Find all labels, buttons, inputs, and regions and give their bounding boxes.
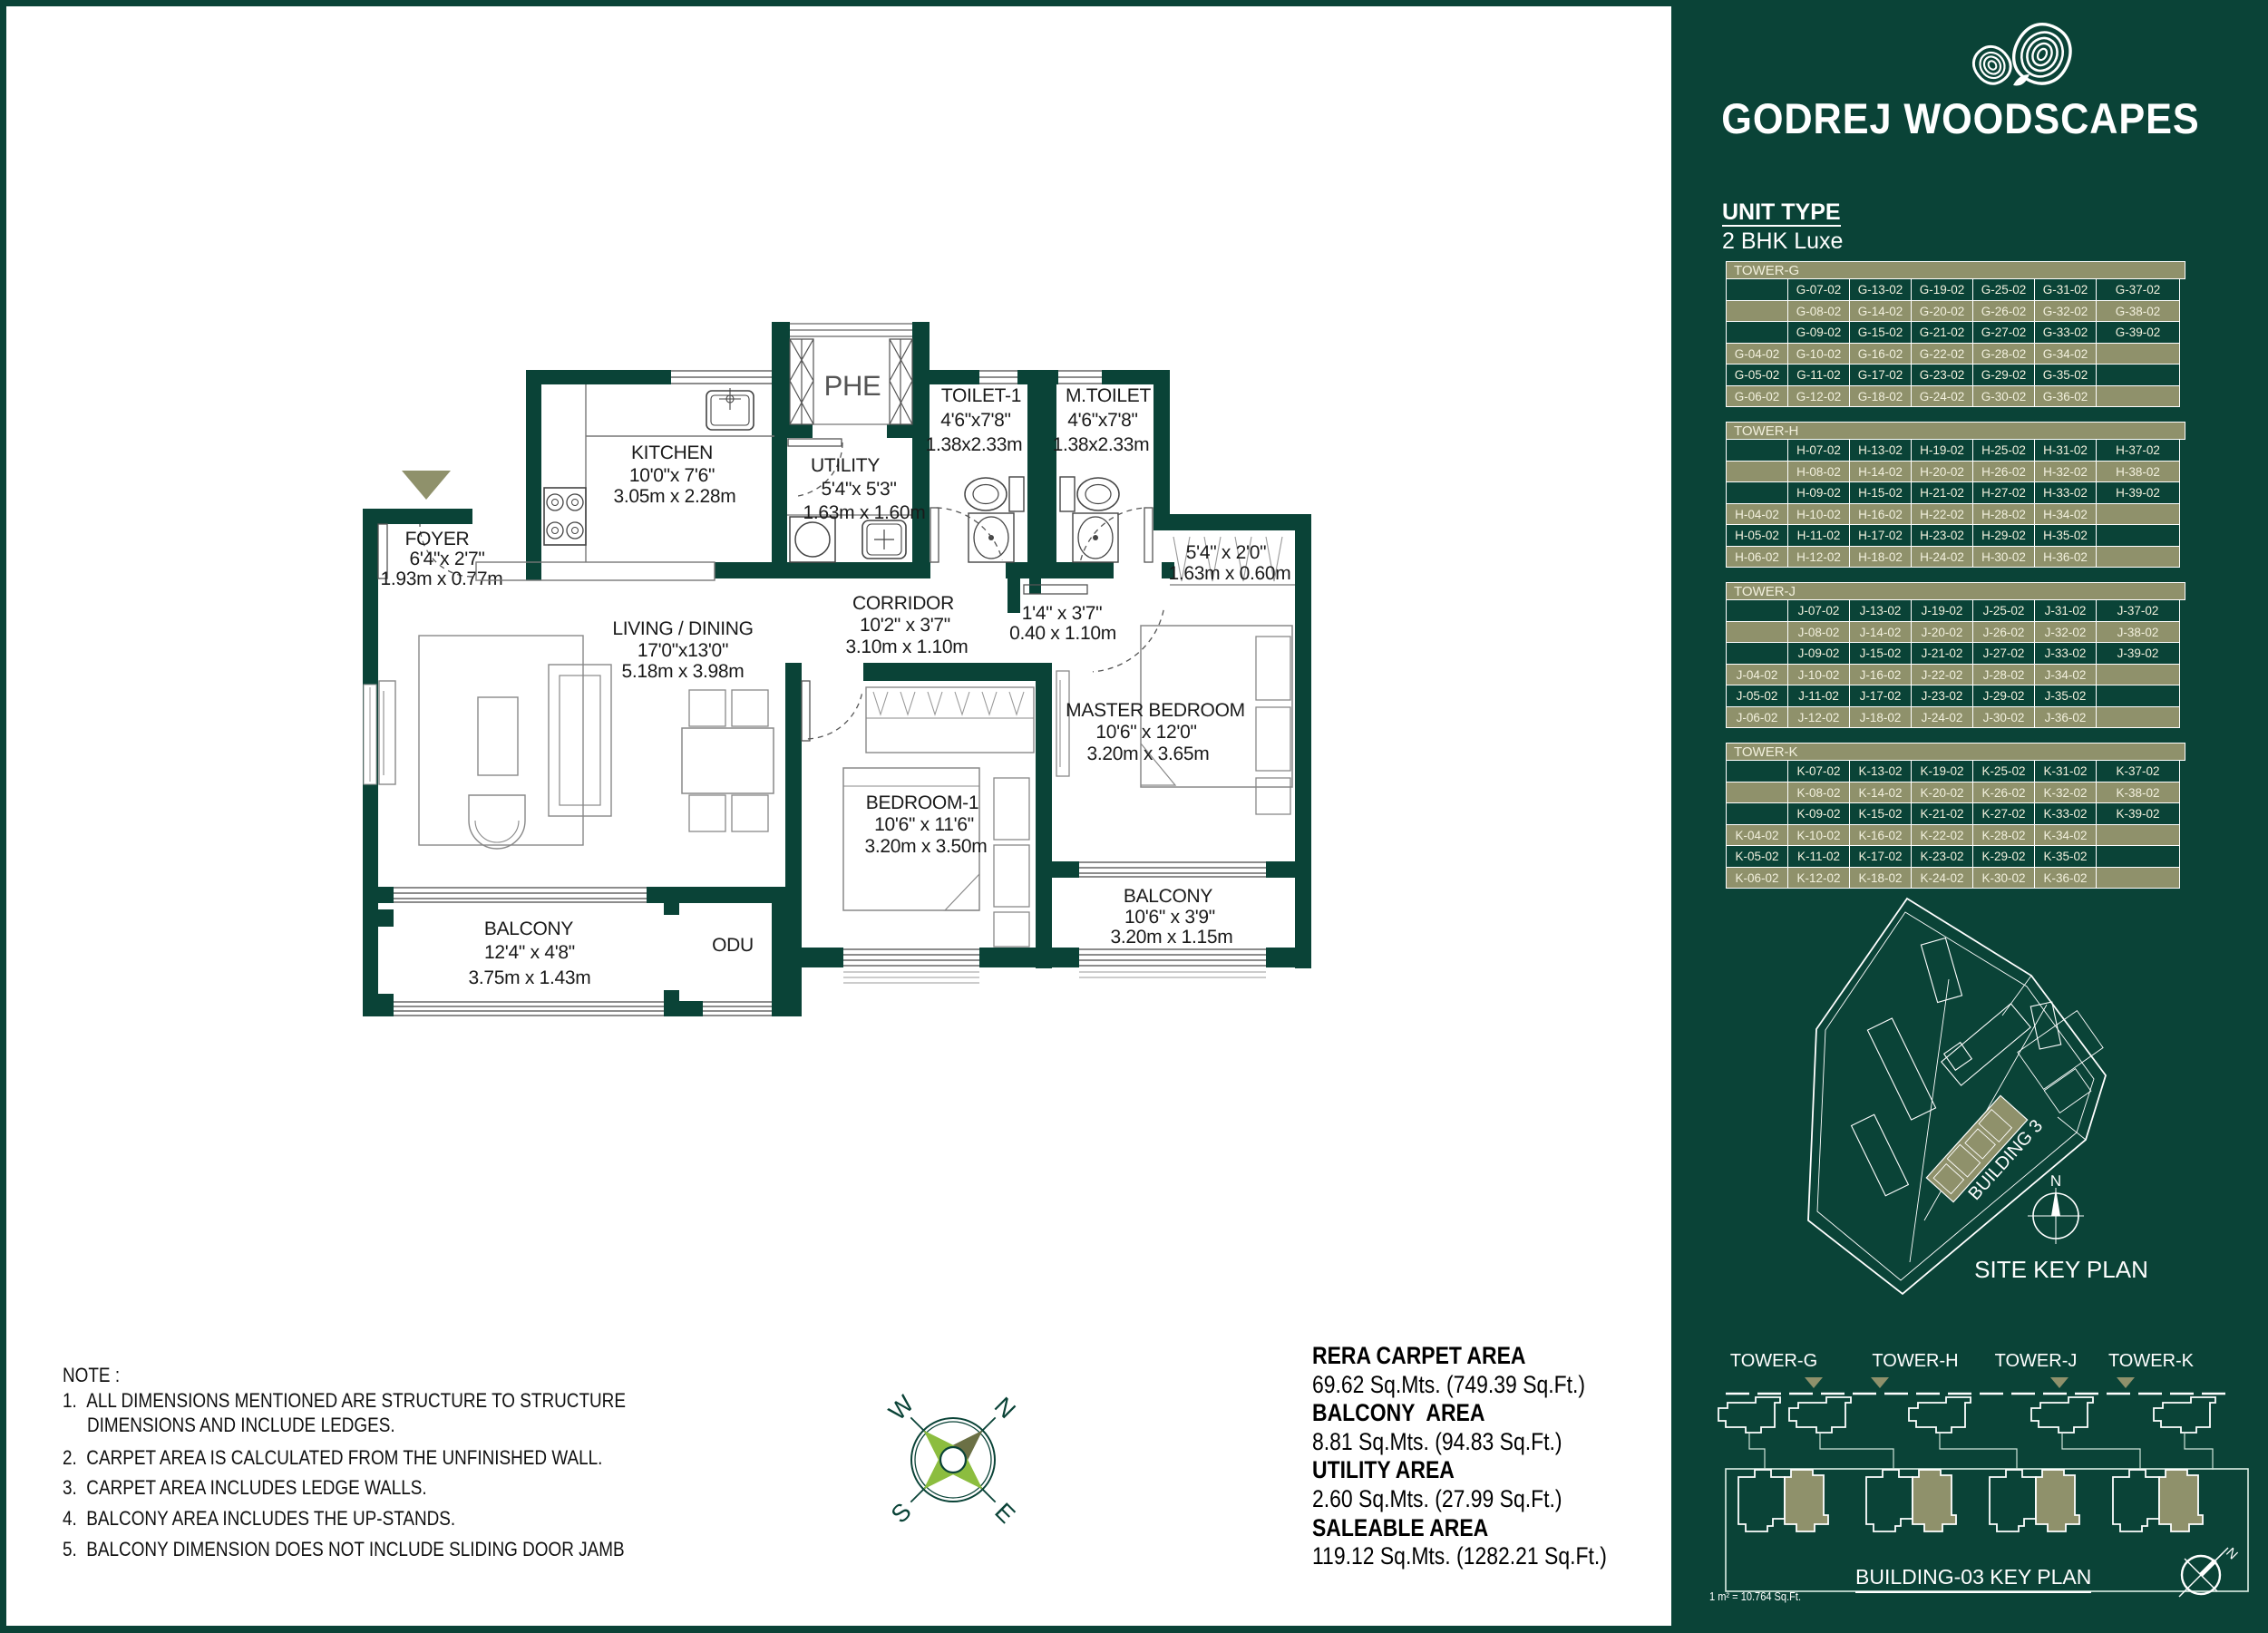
svg-text:PHE: PHE [824, 370, 881, 402]
svg-text:TOILET-1: TOILET-1 [941, 385, 1021, 406]
svg-text:12'4" x 4'8": 12'4" x 4'8" [484, 942, 575, 963]
svg-text:5'4" x 2'0": 5'4" x 2'0" [1186, 542, 1267, 563]
svg-text:6'4"x 2'7": 6'4"x 2'7" [410, 549, 485, 569]
svg-text:N: N [2050, 1172, 2061, 1190]
svg-text:1.38x2.33m: 1.38x2.33m [926, 434, 1023, 455]
svg-text:4'6"x7'8": 4'6"x7'8" [1067, 410, 1137, 431]
svg-text:LIVING / DINING: LIVING / DINING [612, 618, 753, 639]
svg-text:17'0"x13'0": 17'0"x13'0" [638, 640, 728, 661]
svg-text:MASTER BEDROOM: MASTER BEDROOM [1066, 700, 1245, 721]
svg-text:10'6" x 12'0": 10'6" x 12'0" [1095, 722, 1196, 743]
svg-text:3.75m x 1.43m: 3.75m x 1.43m [469, 967, 591, 988]
svg-text:1.63m x 0.60m: 1.63m x 0.60m [1169, 563, 1291, 584]
svg-text:3.10m x 1.10m: 3.10m x 1.10m [846, 637, 969, 657]
svg-text:1.38x2.33m: 1.38x2.33m [1053, 434, 1150, 455]
svg-text:FOYER: FOYER [405, 529, 470, 549]
svg-text:1.93m x 0.77m: 1.93m x 0.77m [381, 569, 503, 589]
svg-text:SITE KEY PLAN: SITE KEY PLAN [1974, 1256, 2148, 1283]
svg-text:1'4" x 3'7": 1'4" x 3'7" [1022, 603, 1103, 624]
svg-text:S: S [886, 1498, 917, 1529]
svg-text:4'6"x7'8": 4'6"x7'8" [940, 410, 1010, 431]
svg-text:0.40 x 1.10m: 0.40 x 1.10m [1009, 623, 1116, 644]
svg-text:BALCONY: BALCONY [1124, 886, 1213, 907]
svg-text:5.18m x 3.98m: 5.18m x 3.98m [622, 661, 745, 682]
svg-text:M.TOILET: M.TOILET [1066, 385, 1152, 406]
svg-text:10'0"x 7'6": 10'0"x 7'6" [629, 465, 715, 486]
svg-text:BEDROOM-1: BEDROOM-1 [866, 792, 978, 813]
svg-text:10'2" x 3'7": 10'2" x 3'7" [860, 615, 950, 636]
svg-text:E: E [989, 1498, 1020, 1529]
svg-text:3.20m x 1.15m: 3.20m x 1.15m [1111, 927, 1233, 948]
svg-text:CORRIDOR: CORRIDOR [852, 593, 954, 614]
svg-text:1.63m x 1.60m: 1.63m x 1.60m [803, 502, 926, 523]
svg-text:3.20m x 3.65m: 3.20m x 3.65m [1087, 744, 1210, 764]
svg-text:3.20m x 3.50m: 3.20m x 3.50m [865, 836, 988, 857]
svg-text:ODU: ODU [712, 935, 754, 956]
svg-text:BALCONY: BALCONY [484, 919, 574, 939]
svg-text:5'4"x 5'3": 5'4"x 5'3" [822, 479, 897, 500]
svg-text:N: N [2223, 1545, 2241, 1563]
svg-text:UTILITY: UTILITY [811, 455, 880, 476]
svg-text:10'6" x 11'6": 10'6" x 11'6" [874, 814, 974, 835]
svg-text:10'6" x 3'9": 10'6" x 3'9" [1124, 907, 1215, 928]
svg-text:3.05m x 2.28m: 3.05m x 2.28m [614, 486, 736, 507]
svg-text:KITCHEN: KITCHEN [631, 442, 713, 463]
